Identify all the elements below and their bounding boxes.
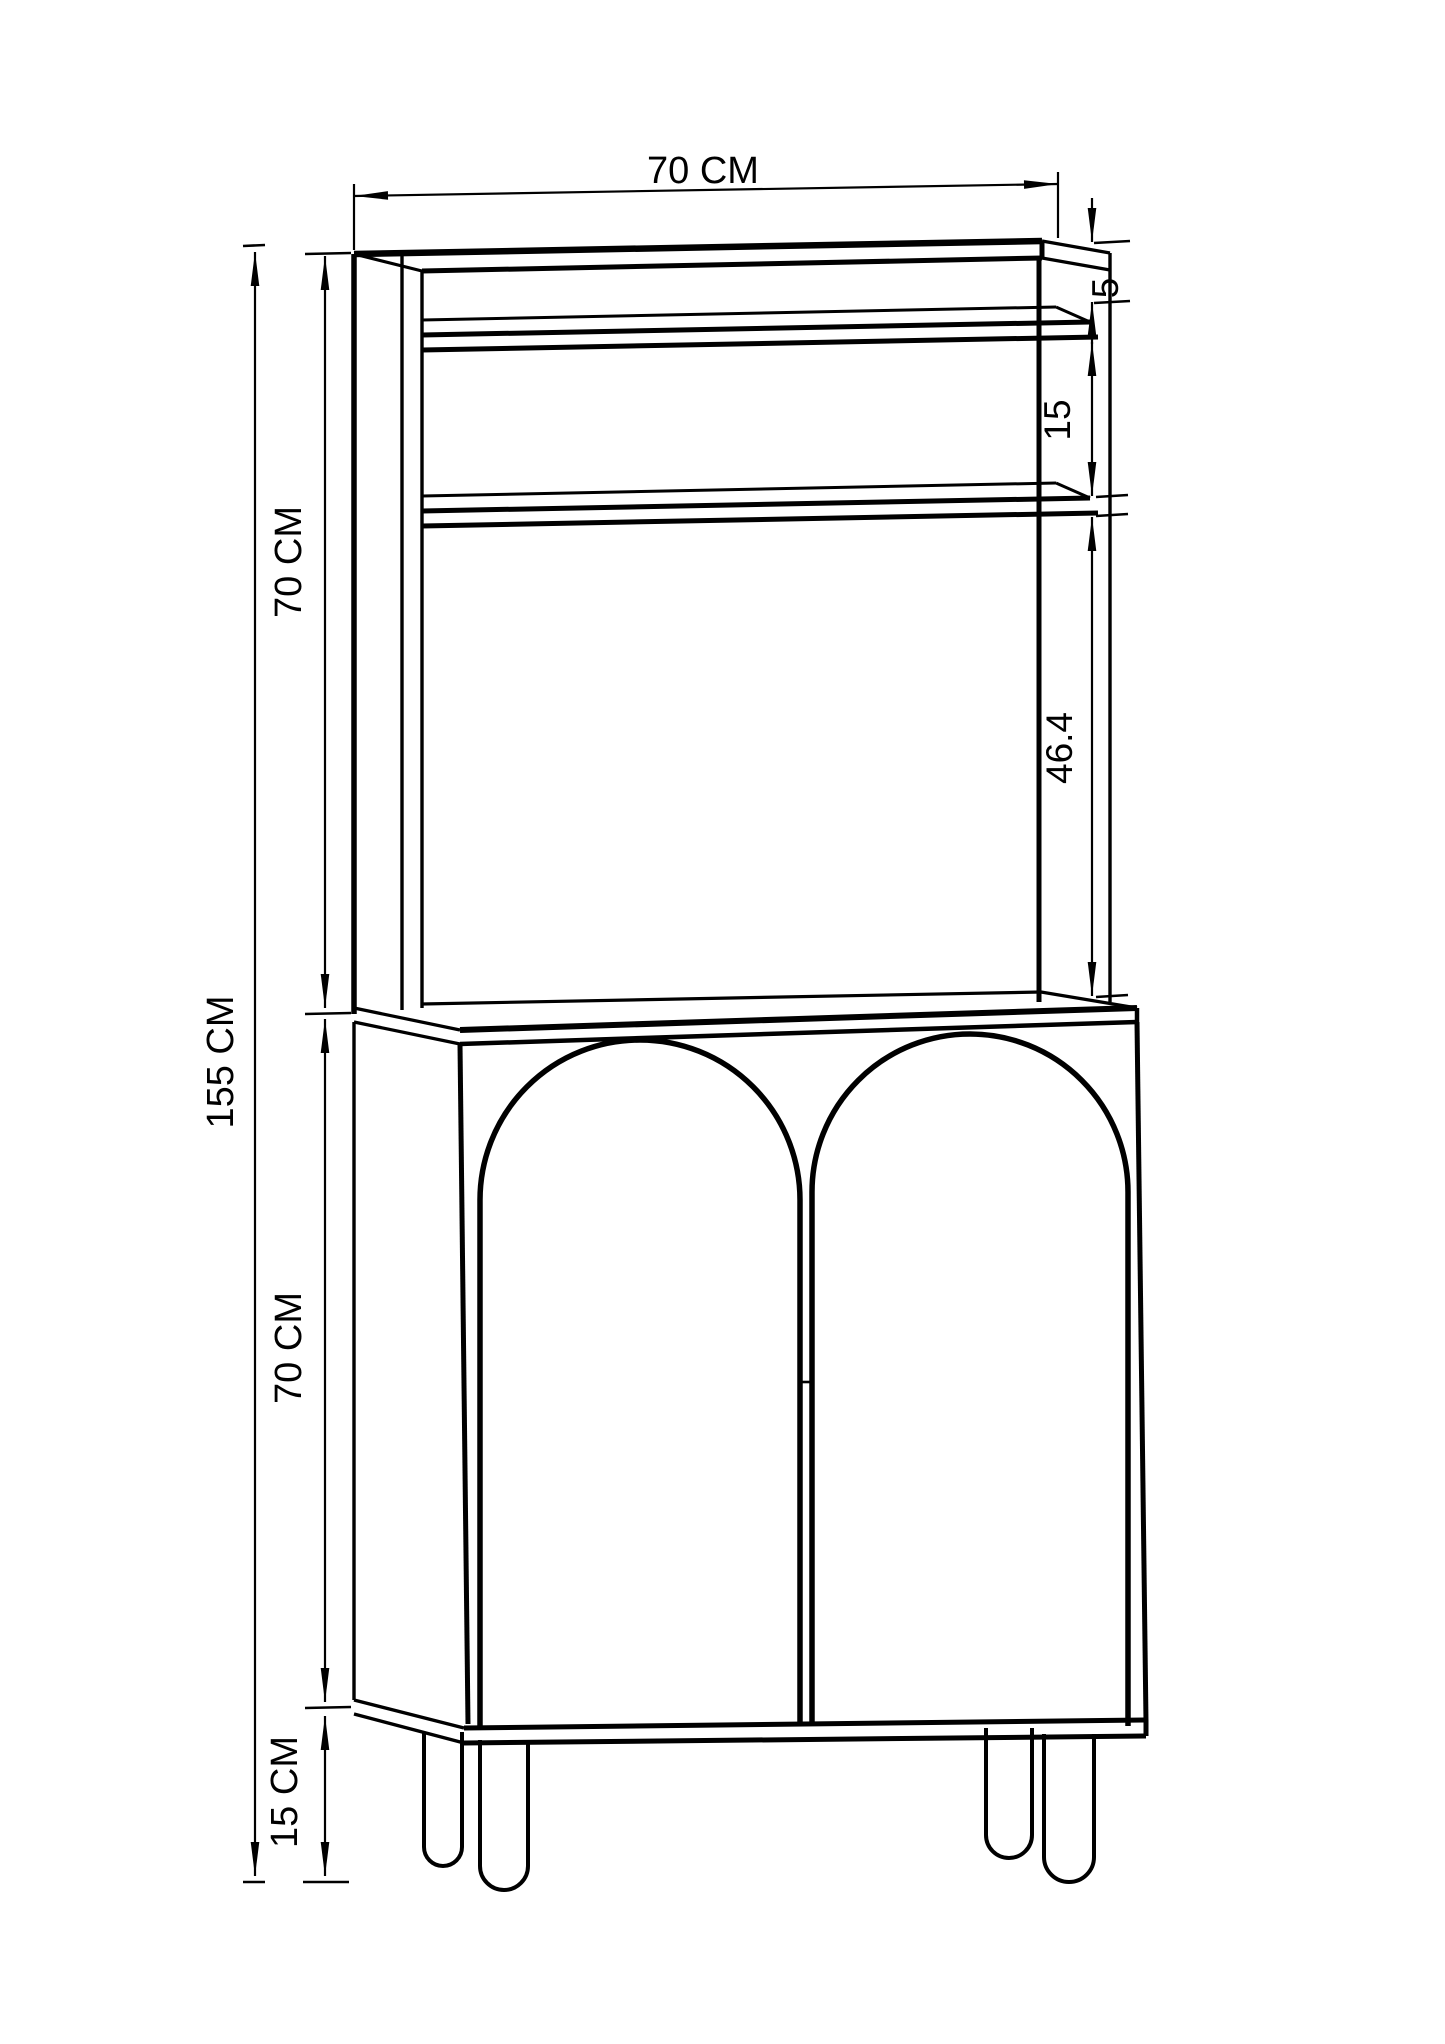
legs-group (424, 1728, 1094, 1890)
tick (1096, 514, 1128, 516)
door-arch-left (480, 1040, 800, 1726)
dim-leg-height (303, 1716, 349, 1882)
cabinet-front-left-edge (460, 1044, 468, 1724)
tick (305, 253, 351, 254)
cabinet-bottom-left-diagonal-bottom (354, 1714, 464, 1743)
hutch-group (354, 241, 1110, 1014)
dim-hutch-height (305, 253, 351, 1014)
furniture-dimension-drawing: 70 CM 5 15 46.4 155 CM 70 CM 70 CM 15 CM (0, 0, 1445, 2044)
shelf1-back-edge (422, 307, 1056, 320)
tick (1094, 301, 1130, 303)
tick (1096, 495, 1128, 497)
shelf2-front-top-edge (422, 498, 1090, 511)
dim-label-shelf-spacing: 15 (1037, 399, 1078, 440)
dim-cabinet-height (305, 1019, 351, 1708)
shelf1-front-top-edge (422, 322, 1090, 335)
cabinet-group (354, 992, 1146, 1743)
leg-front-right (1044, 1734, 1094, 1882)
shelf1-front-bottom-edge (422, 337, 1098, 350)
top-board-top-edge (354, 241, 1042, 254)
dim-label-open-height: 46.4 (1039, 712, 1080, 784)
top-board-depth-bottom (1042, 258, 1110, 270)
drawing-page: 70 CM 5 15 46.4 155 CM 70 CM 70 CM 15 CM (0, 0, 1445, 2044)
cabinet-bottom-left-diagonal-top (354, 1700, 464, 1728)
top-board-bottom-edge (422, 258, 1042, 271)
dim-total-height (243, 245, 265, 1882)
dim-label-board-thickness: 5 (1085, 278, 1126, 299)
door-arch-right (812, 1034, 1128, 1726)
furniture-group (354, 241, 1146, 1890)
tick (243, 245, 265, 246)
dim-label-leg-height: 15 CM (264, 1736, 306, 1848)
cabinet-top-back-edge (422, 992, 1041, 1004)
dim-label-hutch-height: 70 CM (268, 506, 310, 618)
tick (305, 1707, 351, 1708)
shelf2-front-bottom-edge (422, 513, 1098, 526)
tick (1094, 241, 1130, 243)
dim-label-cabinet-height: 70 CM (268, 1292, 310, 1404)
dim-label-top-width: 70 CM (647, 150, 759, 192)
cabinet-front-right-edge (1137, 1022, 1146, 1722)
dim-label-total-height: 155 CM (200, 995, 242, 1128)
cabinet-bottom-top-edge (464, 1720, 1146, 1728)
tick (1096, 995, 1128, 997)
tick (305, 1013, 351, 1014)
shelf2-back-edge (422, 483, 1056, 496)
leg-front-left (480, 1740, 528, 1890)
leg-back-left (424, 1732, 462, 1866)
leg-back-right (986, 1728, 1032, 1858)
